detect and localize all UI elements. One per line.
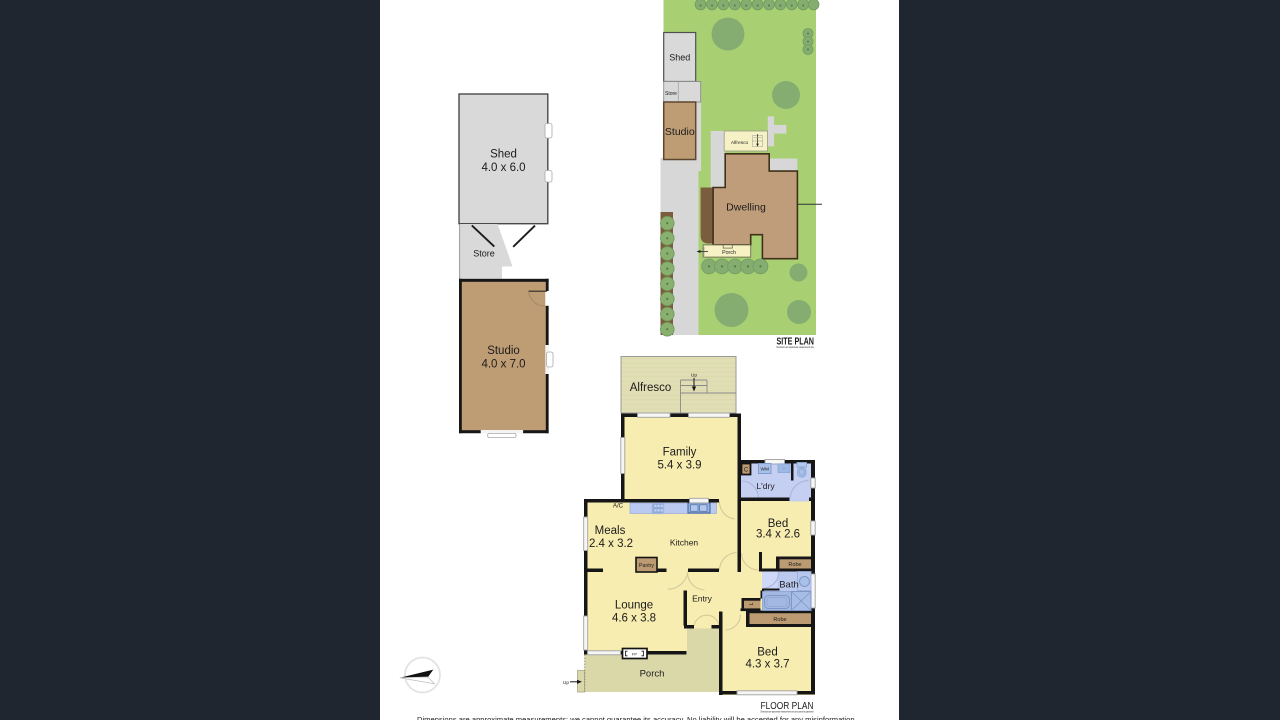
svg-text:4.3 x 3.7: 4.3 x 3.7 [745,659,789,671]
svg-text:Dwelling: Dwelling [726,202,766,214]
svg-text:Robe: Robe [788,562,801,568]
svg-text:2.4 x 3.2: 2.4 x 3.2 [589,538,633,550]
svg-text:A/C: A/C [613,503,624,510]
svg-text:Dimensions are approximate mea: Dimensions are approximate measurements … [761,710,814,713]
svg-text:Store: Store [473,249,495,259]
svg-text:Kitchen: Kitchen [670,538,699,548]
svg-text:Dimensions are approximate mea: Dimensions are approximate measurements … [777,345,815,349]
svg-text:Bed: Bed [757,647,777,659]
svg-text:Porch: Porch [722,250,736,256]
svg-text:Alfresco: Alfresco [731,140,749,146]
svg-text:4.6 x 3.8: 4.6 x 3.8 [612,613,656,625]
svg-text:C: C [744,468,749,474]
svg-text:L: L [749,602,755,605]
svg-text:WM: WM [761,467,770,473]
svg-text:Up: Up [563,680,569,686]
svg-text:Entry: Entry [692,594,713,604]
svg-text:Bath: Bath [779,580,799,591]
svg-text:Shed: Shed [669,53,690,63]
svg-text:Meals: Meals [595,525,626,537]
svg-text:Robe: Robe [773,617,786,623]
svg-text:4.0 x 6.0: 4.0 x 6.0 [481,162,525,174]
svg-text:Alfresco: Alfresco [630,382,672,394]
svg-text:Family: Family [663,447,697,459]
svg-text:Porch: Porch [640,669,665,680]
svg-text:Up: Up [691,373,697,379]
svg-text:Studio: Studio [487,345,520,357]
svg-text:4.0 x 7.0: 4.0 x 7.0 [481,359,525,371]
svg-text:Dimensions are approximate mea: Dimensions are approximate measurements;… [417,715,857,720]
svg-text:3.4 x 2.6: 3.4 x 2.6 [756,529,800,541]
svg-text:5.4 x 3.9: 5.4 x 3.9 [657,460,701,472]
svg-text:Lounge: Lounge [615,600,653,612]
svg-text:Pantry: Pantry [639,563,654,569]
svg-text:L'dry: L'dry [756,481,775,491]
svg-text:Studio: Studio [665,126,695,138]
svg-text:FP: FP [632,651,637,656]
svg-text:Store: Store [665,91,677,97]
svg-text:Shed: Shed [490,149,517,161]
